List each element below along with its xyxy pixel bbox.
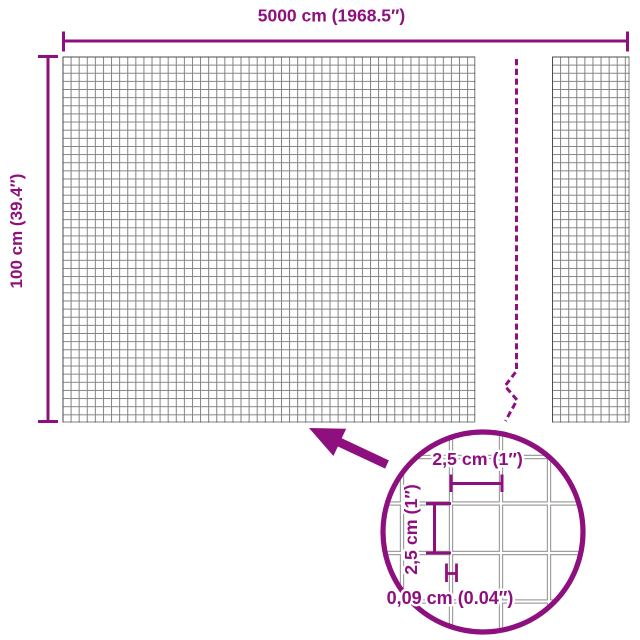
svg-text:2,5 cm (1″): 2,5 cm (1″) xyxy=(401,484,421,575)
svg-text:5000 cm (1968.5″): 5000 cm (1968.5″) xyxy=(258,5,406,25)
svg-text:0,09 cm (0.04″): 0,09 cm (0.04″) xyxy=(387,588,514,608)
svg-text:100 cm (39.4″): 100 cm (39.4″) xyxy=(7,174,26,289)
svg-text:2,5 cm (1″): 2,5 cm (1″) xyxy=(432,449,523,469)
